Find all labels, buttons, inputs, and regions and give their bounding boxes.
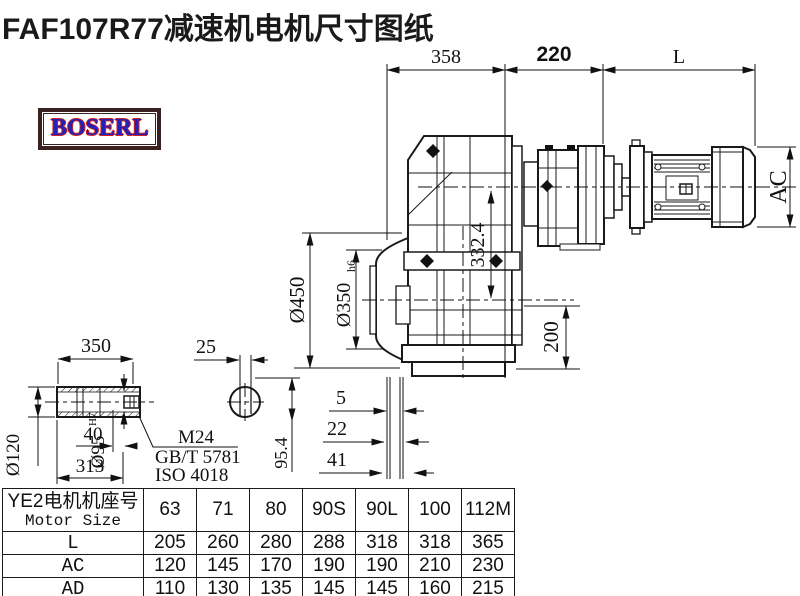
table-cell: 160 — [409, 578, 462, 596]
dim-AC-label: AC — [766, 170, 792, 203]
dim-5-label: 5 — [336, 387, 346, 409]
dim-358-label: 358 — [431, 46, 461, 68]
table-cell: 215 — [462, 578, 515, 596]
dim-450-label: Ø450 — [285, 277, 309, 324]
screw-std-iso-label: ISO 4018 — [155, 465, 228, 486]
dim-120-label: Ø120 — [3, 434, 24, 476]
dim-313-label: 313 — [76, 456, 105, 477]
table-cell: 100 — [409, 489, 462, 532]
dim-332-label: 332.4 — [467, 223, 489, 268]
table-cell: 145 — [197, 555, 250, 578]
table-cell: 120 — [144, 555, 197, 578]
table-row: AD 110 130 135 145 145 160 215 — [3, 578, 515, 596]
table-cell: 145 — [356, 578, 409, 596]
motor-size-table: YE2电机机座号 Motor Size 63 71 80 90S 90L 100… — [2, 488, 515, 596]
header-label-cn: YE2电机机座号 — [3, 491, 143, 512]
table-cell: 318 — [409, 532, 462, 555]
dim-350h6-label: Ø350 — [333, 283, 355, 327]
gearbox-housing — [370, 136, 522, 376]
input-adapter — [524, 145, 604, 250]
dim-41-label: 41 — [327, 449, 347, 471]
table-cell: 318 — [356, 532, 409, 555]
dim-220-label: 220 — [536, 43, 571, 66]
table-cell: 110 — [144, 578, 197, 596]
table-cell: 170 — [250, 555, 303, 578]
table-cell: 80 — [250, 489, 303, 532]
table-cell: 230 — [462, 555, 515, 578]
dim-22-label: 22 — [327, 418, 347, 440]
table-cell: 210 — [409, 555, 462, 578]
table-header-row: YE2电机机座号 Motor Size 63 71 80 90S 90L 100… — [3, 489, 515, 532]
dim-954-label: 95.4 — [271, 437, 291, 469]
table-cell: 112M — [462, 489, 515, 532]
table-cell: 130 — [197, 578, 250, 596]
table-cell: 365 — [462, 532, 515, 555]
table-cell: 90L — [356, 489, 409, 532]
table-cell: 145 — [303, 578, 356, 596]
table-cell: 190 — [303, 555, 356, 578]
table-cell: 71 — [197, 489, 250, 532]
dim-L-label: L — [673, 46, 685, 68]
table-row: AC 120 145 170 190 190 210 230 — [3, 555, 515, 578]
table-cell: 90S — [303, 489, 356, 532]
row-label: AC — [3, 555, 144, 578]
dim-350h6-tol: h6 — [344, 260, 358, 272]
row-label: L — [3, 532, 144, 555]
dim-shaft-350-label: 350 — [81, 335, 111, 357]
table-cell: 190 — [356, 555, 409, 578]
table-cell: 260 — [197, 532, 250, 555]
screw-spec-label: M24 — [178, 427, 214, 448]
table-cell: 280 — [250, 532, 303, 555]
table-cell: 288 — [303, 532, 356, 555]
table-cell: 135 — [250, 578, 303, 596]
row-label: AD — [3, 578, 144, 596]
table-row: L 205 260 280 288 318 318 365 — [3, 532, 515, 555]
table-cell: 63 — [144, 489, 197, 532]
table-cell: 205 — [144, 532, 197, 555]
dim-25-label: 25 — [196, 336, 216, 358]
dim-40-label: 40 — [84, 424, 103, 445]
table-header-label: YE2电机机座号 Motor Size — [3, 489, 144, 532]
dim-200-label: 200 — [539, 321, 563, 353]
drawing-page: FAF107R77减速机电机尺寸图纸 BOSERL — [0, 0, 800, 596]
header-label-en: Motor Size — [3, 512, 143, 530]
